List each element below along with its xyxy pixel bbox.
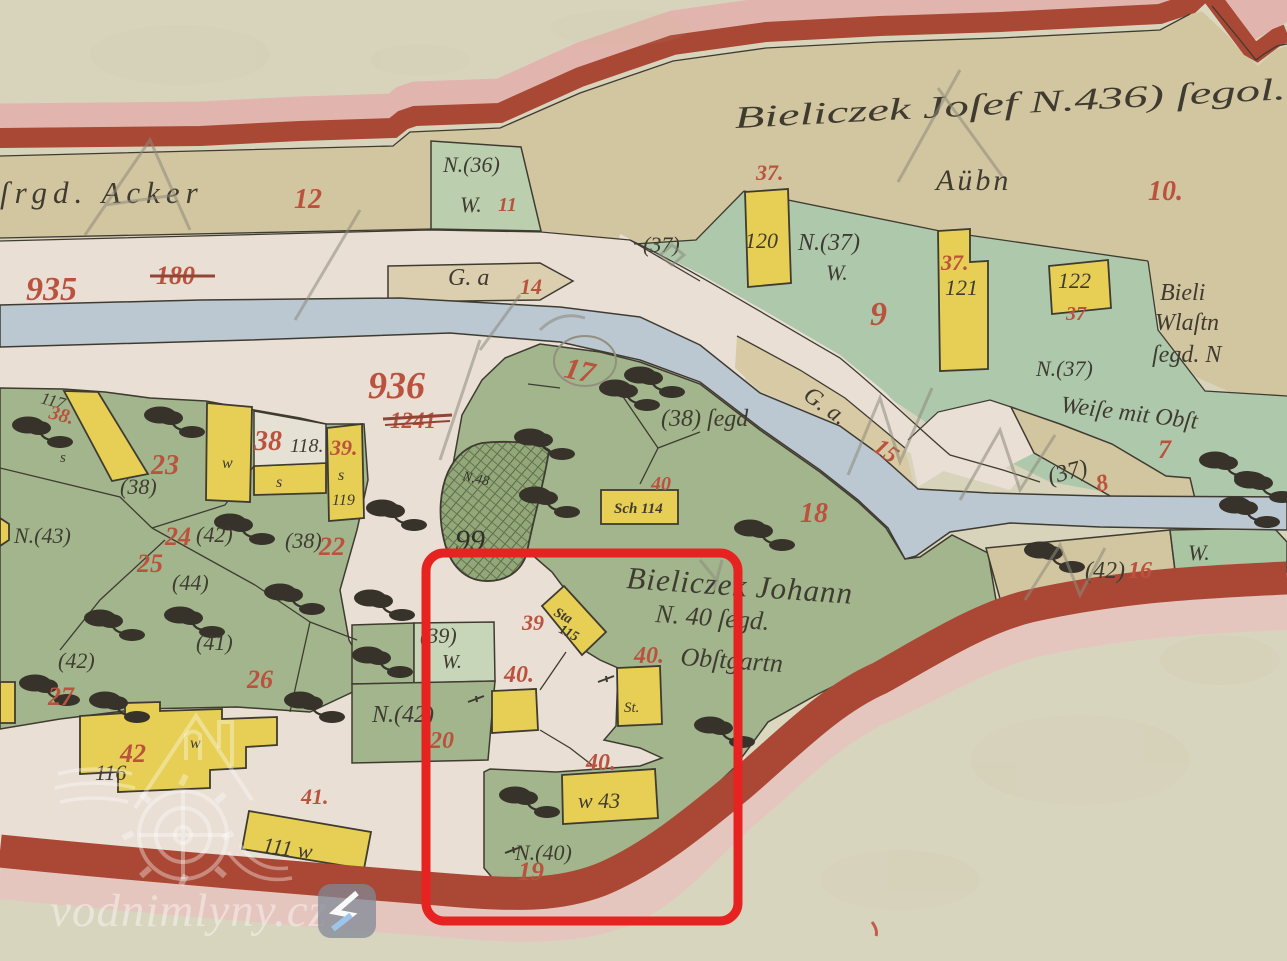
- svg-text:vodnimlyny.cz: vodnimlyny.cz: [50, 885, 328, 937]
